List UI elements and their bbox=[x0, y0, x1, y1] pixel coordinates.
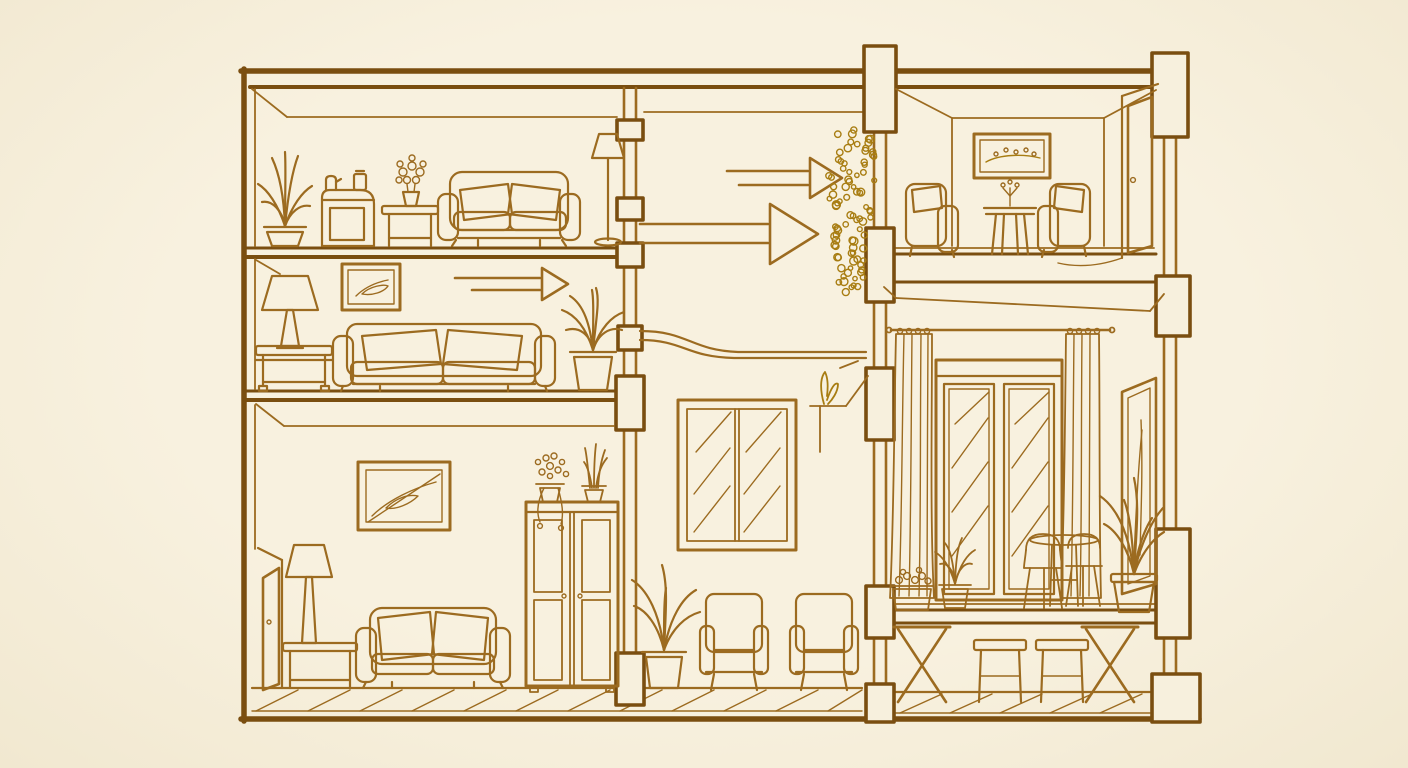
snake-plant-on-wardrobe bbox=[582, 444, 607, 502]
trailing-plant-on-wardrobe bbox=[535, 453, 568, 530]
interior-door bbox=[1058, 84, 1158, 266]
room-bottom-right-terrace bbox=[887, 328, 1165, 703]
wall-block bbox=[617, 120, 643, 140]
center-hall bbox=[632, 127, 877, 690]
wall-block bbox=[1156, 529, 1190, 638]
plank-floor-left bbox=[256, 690, 862, 711]
wall-block bbox=[617, 198, 643, 220]
wardrobe bbox=[526, 502, 618, 692]
table-lamp-on-side-table bbox=[283, 545, 357, 688]
cabinet bbox=[322, 171, 374, 246]
bistro-table bbox=[1030, 535, 1098, 606]
floor-lamp bbox=[592, 134, 624, 246]
potted-plant bbox=[562, 288, 624, 390]
left-curtain bbox=[890, 328, 934, 598]
sofa bbox=[438, 172, 580, 246]
side-table-with-flowers bbox=[382, 155, 438, 246]
curved-duct-line bbox=[640, 331, 866, 368]
wall-block bbox=[1152, 53, 1188, 137]
framed-picture bbox=[974, 134, 1050, 178]
corner-ledge-plant bbox=[810, 372, 868, 452]
wall-mirror bbox=[678, 400, 796, 550]
loveseat-sofa bbox=[356, 608, 510, 688]
wall-block bbox=[616, 653, 644, 705]
flower-cluster bbox=[396, 155, 426, 192]
wall-block bbox=[866, 368, 894, 440]
kettle-icon bbox=[326, 176, 336, 190]
wall-block bbox=[866, 228, 894, 302]
sprig-icon bbox=[1001, 180, 1019, 206]
perspective-lines bbox=[252, 89, 1164, 549]
wall-block bbox=[1152, 674, 1200, 722]
wall-block bbox=[866, 684, 894, 722]
potted-plant bbox=[258, 152, 312, 246]
center-left-wall bbox=[624, 88, 636, 653]
airflow-arrow-large bbox=[640, 204, 818, 264]
deck-substructure bbox=[894, 627, 1138, 702]
airflow-arrow-small-room bbox=[455, 268, 568, 300]
illustration-canvas bbox=[0, 0, 1408, 768]
small-spiky-plant bbox=[935, 538, 975, 608]
room-top-right-sitting bbox=[906, 84, 1158, 266]
framed-picture bbox=[342, 264, 400, 310]
sofa-large bbox=[333, 324, 555, 391]
airflow-arrow-small bbox=[727, 158, 842, 198]
wall-block bbox=[617, 243, 643, 267]
armchair bbox=[790, 594, 858, 690]
glazed-window bbox=[936, 360, 1062, 600]
room-top-left-living bbox=[258, 134, 624, 246]
jar-icon bbox=[354, 174, 366, 190]
room-middle-left-lounge bbox=[256, 264, 624, 391]
framed-picture bbox=[358, 462, 450, 530]
right-curtain bbox=[1061, 328, 1101, 598]
open-door bbox=[258, 548, 282, 690]
facing-armchair-left bbox=[906, 184, 958, 257]
chimney-block bbox=[864, 46, 896, 132]
side-table-with-sprig bbox=[984, 180, 1036, 254]
table-lamp-on-side-table bbox=[256, 276, 332, 391]
wall-block bbox=[616, 376, 644, 430]
house-cutaway-svg bbox=[0, 0, 1408, 768]
facing-armchair-right bbox=[1038, 184, 1090, 257]
room-bottom-left-bedroom bbox=[258, 444, 618, 692]
armchair bbox=[700, 594, 768, 690]
wall-block bbox=[1156, 276, 1190, 336]
